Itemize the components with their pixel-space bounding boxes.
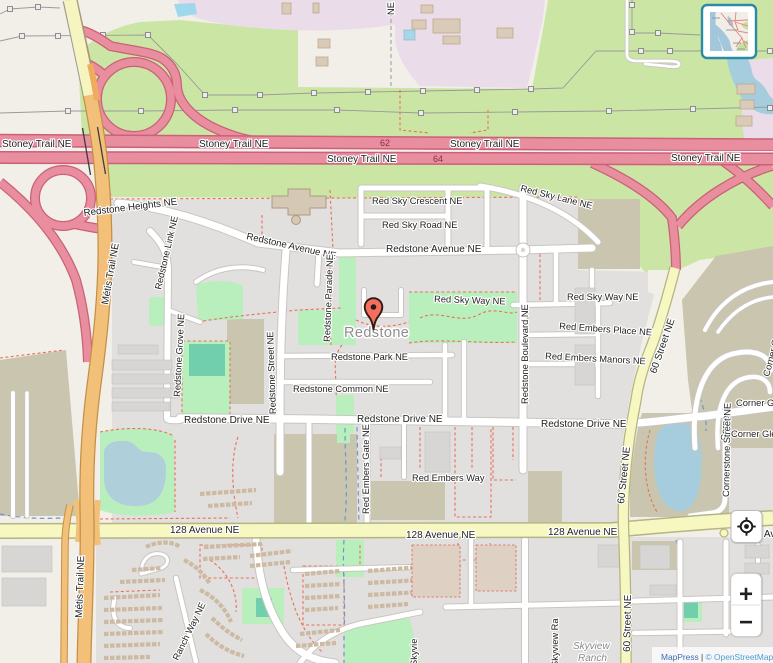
svg-text:Stoney Trail NE: Stoney Trail NE bbox=[327, 154, 397, 165]
svg-text:Skyview: Skyview bbox=[573, 641, 610, 652]
svg-text:Métis Trail NE: Métis Trail NE bbox=[74, 555, 87, 618]
svg-text:Red Embers Gate NE: Red Embers Gate NE bbox=[361, 424, 371, 514]
svg-text:Redstone: Redstone bbox=[344, 325, 409, 341]
svg-text:60 Street NE: 60 Street NE bbox=[622, 594, 634, 652]
svg-text:Stoney Trail NE: Stoney Trail NE bbox=[2, 139, 72, 150]
svg-text:Redstone Drive NE: Redstone Drive NE bbox=[357, 414, 443, 425]
svg-text:Red Sky Crescent NE: Red Sky Crescent NE bbox=[372, 196, 462, 206]
svg-text:Skyvie: Skyvie bbox=[409, 639, 419, 663]
svg-text:MapPress | © OpenStreetMap: MapPress | © OpenStreetMap bbox=[661, 652, 773, 662]
svg-text:Redstone Drive NE: Redstone Drive NE bbox=[184, 415, 270, 426]
svg-text:Redstone Common NE: Redstone Common NE bbox=[293, 384, 389, 394]
svg-text:Redstone Boulevard NE: Redstone Boulevard NE bbox=[520, 304, 530, 404]
svg-text:Redstone Avenue NE: Redstone Avenue NE bbox=[386, 244, 482, 255]
svg-text:128 Avenue NE: 128 Avenue NE bbox=[548, 527, 618, 538]
svg-text:+: + bbox=[739, 581, 753, 608]
svg-text:64: 64 bbox=[433, 154, 443, 164]
svg-text:Corner Glen: Corner Glen bbox=[731, 429, 773, 439]
svg-text:62: 62 bbox=[380, 138, 390, 148]
svg-text:Redstone Park NE: Redstone Park NE bbox=[331, 352, 408, 362]
svg-text:Stoney Trail NE: Stoney Trail NE bbox=[450, 139, 520, 150]
svg-text:128 Avenue NE: 128 Avenue NE bbox=[170, 525, 240, 536]
svg-text:Skyview Ra: Skyview Ra bbox=[550, 618, 560, 663]
svg-text:Stoney Trail NE: Stoney Trail NE bbox=[671, 153, 741, 164]
svg-text:Red Sky Road NE: Red Sky Road NE bbox=[382, 220, 457, 230]
svg-text:Ranch: Ranch bbox=[578, 653, 607, 663]
svg-text:128 Avenue NE: 128 Avenue NE bbox=[406, 530, 476, 541]
svg-text:Stoney Trail NE: Stoney Trail NE bbox=[199, 139, 269, 150]
svg-text:−: − bbox=[739, 609, 753, 636]
svg-text:Cornerstone Street NE: Cornerstone Street NE bbox=[721, 403, 733, 497]
svg-text:Red Embers Way: Red Embers Way bbox=[412, 473, 485, 483]
svg-text:Corner Gle: Corner Gle bbox=[736, 398, 773, 408]
svg-text:Red Sky Way NE: Red Sky Way NE bbox=[567, 292, 638, 302]
svg-text:NE: NE bbox=[386, 2, 396, 15]
svg-text:Redstone Drive NE: Redstone Drive NE bbox=[541, 419, 627, 430]
